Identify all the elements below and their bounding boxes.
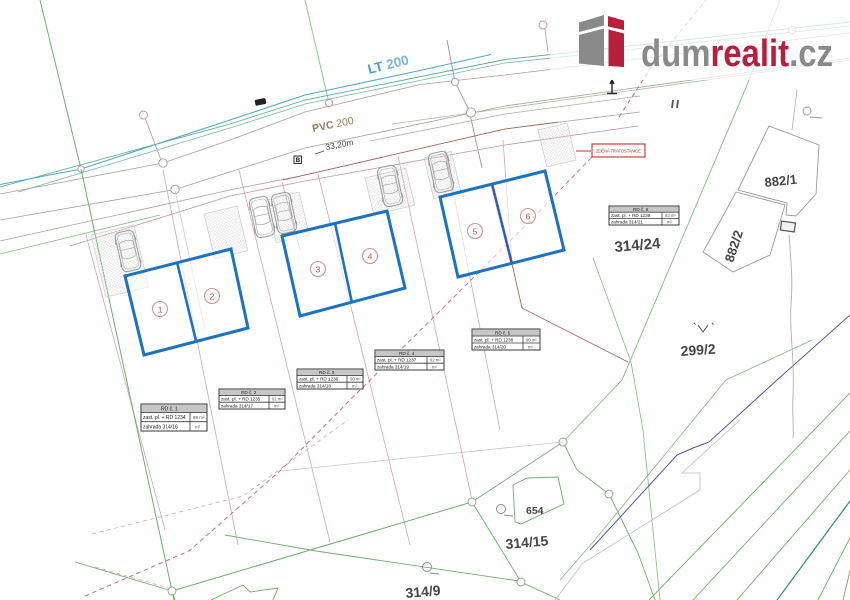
svg-text:93 m²: 93 m² [665, 213, 676, 218]
svg-text:RD č. 6: RD č. 6 [633, 207, 649, 212]
svg-text:zahrada 314/16: zahrada 314/16 [143, 425, 178, 431]
svg-text:zahrada 314/18: zahrada 314/18 [299, 383, 331, 388]
svg-text:92 m²: 92 m² [430, 358, 441, 363]
svg-text:m²: m² [432, 364, 437, 369]
svg-text:zahrada 314/21: zahrada 314/21 [611, 220, 643, 225]
svg-text:6: 6 [526, 211, 531, 221]
svg-text:91 m²: 91 m² [272, 397, 283, 402]
svg-text:90 m²: 90 m² [526, 337, 537, 342]
svg-text:m²: m² [667, 220, 672, 225]
svg-text:zast. pl. + RD 1239: zast. pl. + RD 1239 [611, 213, 651, 218]
svg-text:m²: m² [528, 344, 533, 349]
svg-text:314/9: 314/9 [405, 582, 442, 600]
svg-text:m²: m² [274, 403, 279, 408]
svg-text:zast. pl. + RD 1235: zast. pl. + RD 1235 [221, 397, 261, 402]
svg-text:zahrada 314/17: zahrada 314/17 [221, 403, 253, 408]
svg-text:654: 654 [526, 505, 544, 517]
svg-text:m²: m² [352, 383, 357, 388]
svg-text:4: 4 [368, 251, 373, 261]
svg-text:3: 3 [316, 264, 321, 274]
svg-text:RD č. 5: RD č. 5 [495, 331, 511, 336]
svg-text:RD č. 3: RD č. 3 [319, 370, 335, 375]
svg-text:zast. pl. + RD 1237: zast. pl. + RD 1237 [377, 358, 417, 363]
svg-text:B: B [296, 158, 301, 164]
svg-text:ZDĚNÁ TRAFOSTANICE: ZDĚNÁ TRAFOSTANICE [596, 149, 641, 154]
svg-text:2: 2 [210, 291, 215, 301]
svg-text:zahrada 314/20: zahrada 314/20 [474, 344, 506, 349]
svg-text:RD č. 2: RD č. 2 [241, 390, 257, 395]
svg-text:RD č. 4: RD č. 4 [399, 351, 415, 356]
svg-text:5: 5 [473, 226, 478, 236]
svg-text:zast. pl. + RD 1238: zast. pl. + RD 1238 [474, 337, 514, 342]
svg-text:1: 1 [158, 304, 163, 314]
svg-text:zast. pl. + RD 1236: zast. pl. + RD 1236 [299, 377, 339, 382]
svg-text:dumrealit.cz: dumrealit.cz [641, 33, 833, 75]
svg-text:299/2: 299/2 [680, 341, 716, 359]
svg-text:m²: m² [195, 425, 201, 430]
svg-text:89 m²: 89 m² [193, 415, 205, 420]
svg-text:RD č. 1: RD č. 1 [161, 407, 178, 413]
svg-text:zast. pl. + RD 1234: zast. pl. + RD 1234 [143, 415, 186, 421]
svg-text:90 m²: 90 m² [350, 377, 361, 382]
svg-text:zahrada 314/19: zahrada 314/19 [377, 364, 409, 369]
